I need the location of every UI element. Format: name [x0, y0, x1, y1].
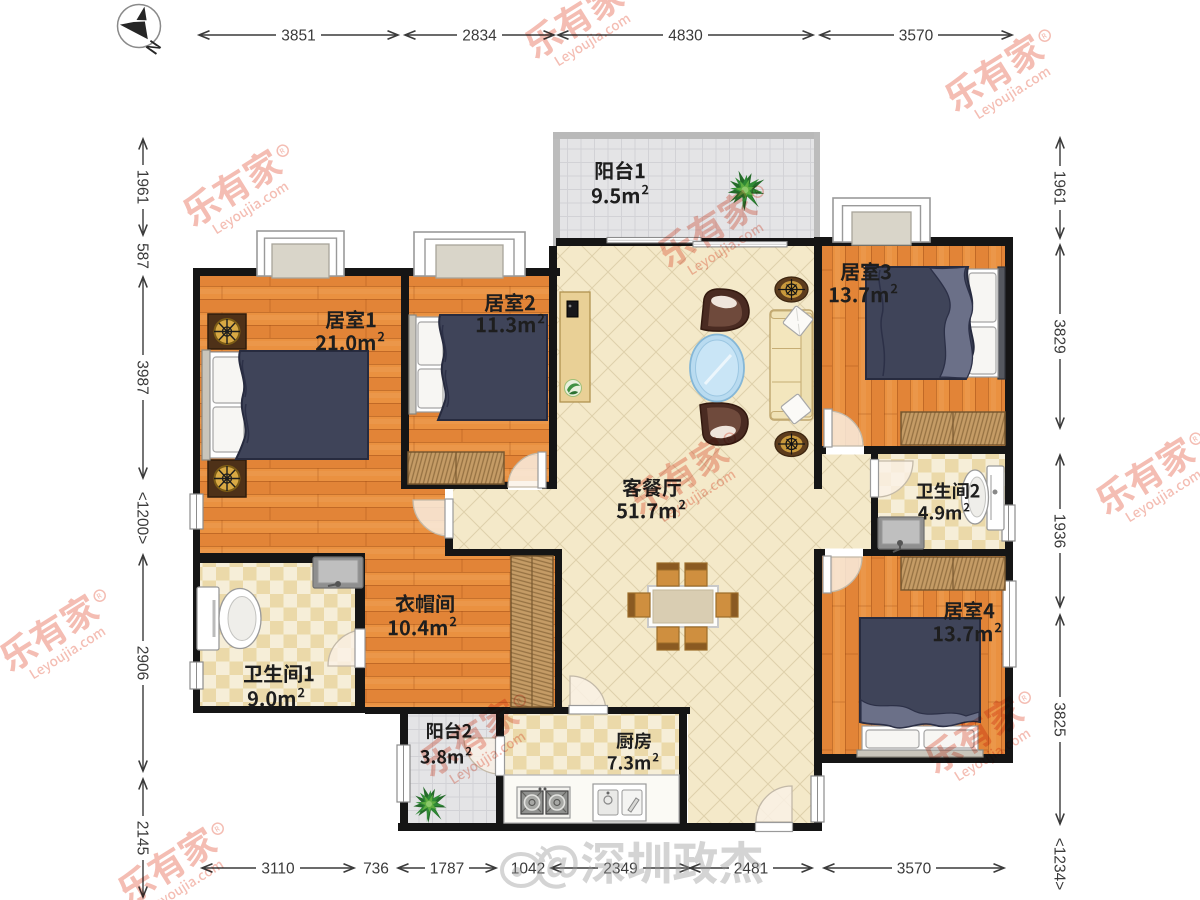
svg-text:3825: 3825 — [1051, 702, 1068, 736]
svg-text:<1200>: <1200> — [134, 492, 151, 545]
svg-text:1787: 1787 — [430, 861, 464, 878]
svg-text:2906: 2906 — [134, 646, 151, 680]
svg-text:3570: 3570 — [897, 861, 932, 878]
svg-text:3110: 3110 — [261, 861, 295, 878]
svg-text:2145: 2145 — [134, 821, 151, 855]
svg-text:4830: 4830 — [668, 28, 703, 45]
svg-text:1961: 1961 — [1051, 171, 1068, 205]
svg-text:587: 587 — [134, 243, 151, 269]
svg-text:736: 736 — [363, 861, 389, 878]
svg-text:3570: 3570 — [899, 28, 934, 45]
svg-text:3851: 3851 — [281, 28, 315, 45]
svg-text:3987: 3987 — [134, 360, 151, 394]
svg-text:1936: 1936 — [1051, 514, 1068, 548]
svg-text:1961: 1961 — [134, 170, 151, 204]
svg-text:2834: 2834 — [462, 28, 497, 45]
svg-text:<1234>: <1234> — [1051, 838, 1068, 891]
svg-text:3829: 3829 — [1051, 319, 1068, 353]
